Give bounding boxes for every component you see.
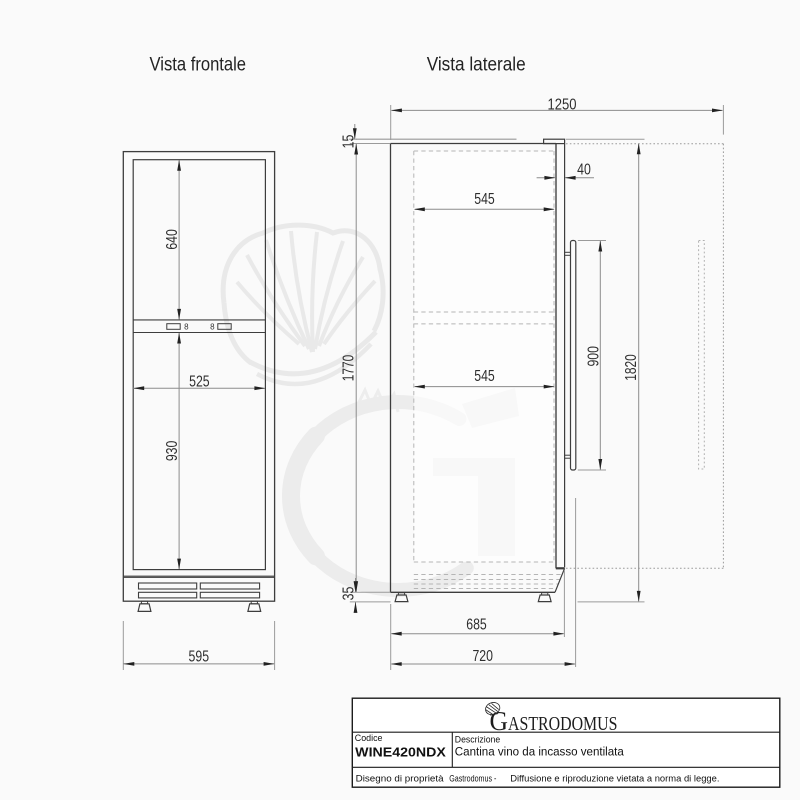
svg-text:15: 15 — [341, 135, 358, 149]
svg-text:WINE420NDX: WINE420NDX — [355, 745, 446, 760]
svg-text:8: 8 — [210, 322, 215, 331]
svg-text:900: 900 — [585, 346, 602, 367]
svg-text:Diffusione e riproduzione viet: Diffusione e riproduzione vietata a norm… — [510, 774, 719, 785]
svg-text:930: 930 — [164, 441, 181, 462]
svg-text:595: 595 — [189, 648, 210, 665]
svg-text:1820: 1820 — [623, 354, 640, 381]
svg-text:Vista laterale: Vista laterale — [427, 55, 526, 76]
svg-text:720: 720 — [472, 648, 493, 665]
svg-text:8: 8 — [184, 322, 189, 331]
svg-text:Gastrodomus -: Gastrodomus - — [449, 774, 496, 784]
svg-text:40: 40 — [577, 162, 591, 179]
svg-text:Descrizione: Descrizione — [455, 735, 500, 745]
svg-text:545: 545 — [474, 191, 495, 208]
svg-text:545: 545 — [474, 368, 495, 385]
svg-text:1770: 1770 — [341, 355, 358, 382]
svg-text:Cantina vino da incasso ventil: Cantina vino da incasso ventilata — [455, 745, 624, 759]
svg-text:Disegno di proprietà: Disegno di proprietà — [356, 774, 445, 785]
svg-text:1250: 1250 — [548, 96, 577, 113]
svg-text:Vista frontale: Vista frontale — [150, 55, 247, 76]
svg-text:640: 640 — [164, 229, 181, 250]
svg-text:Codice: Codice — [355, 733, 383, 743]
svg-text:35: 35 — [341, 587, 358, 601]
svg-text:685: 685 — [466, 617, 487, 634]
svg-text:ASTRODOMUS: ASTRODOMUS — [508, 714, 618, 735]
svg-text:525: 525 — [189, 374, 210, 391]
